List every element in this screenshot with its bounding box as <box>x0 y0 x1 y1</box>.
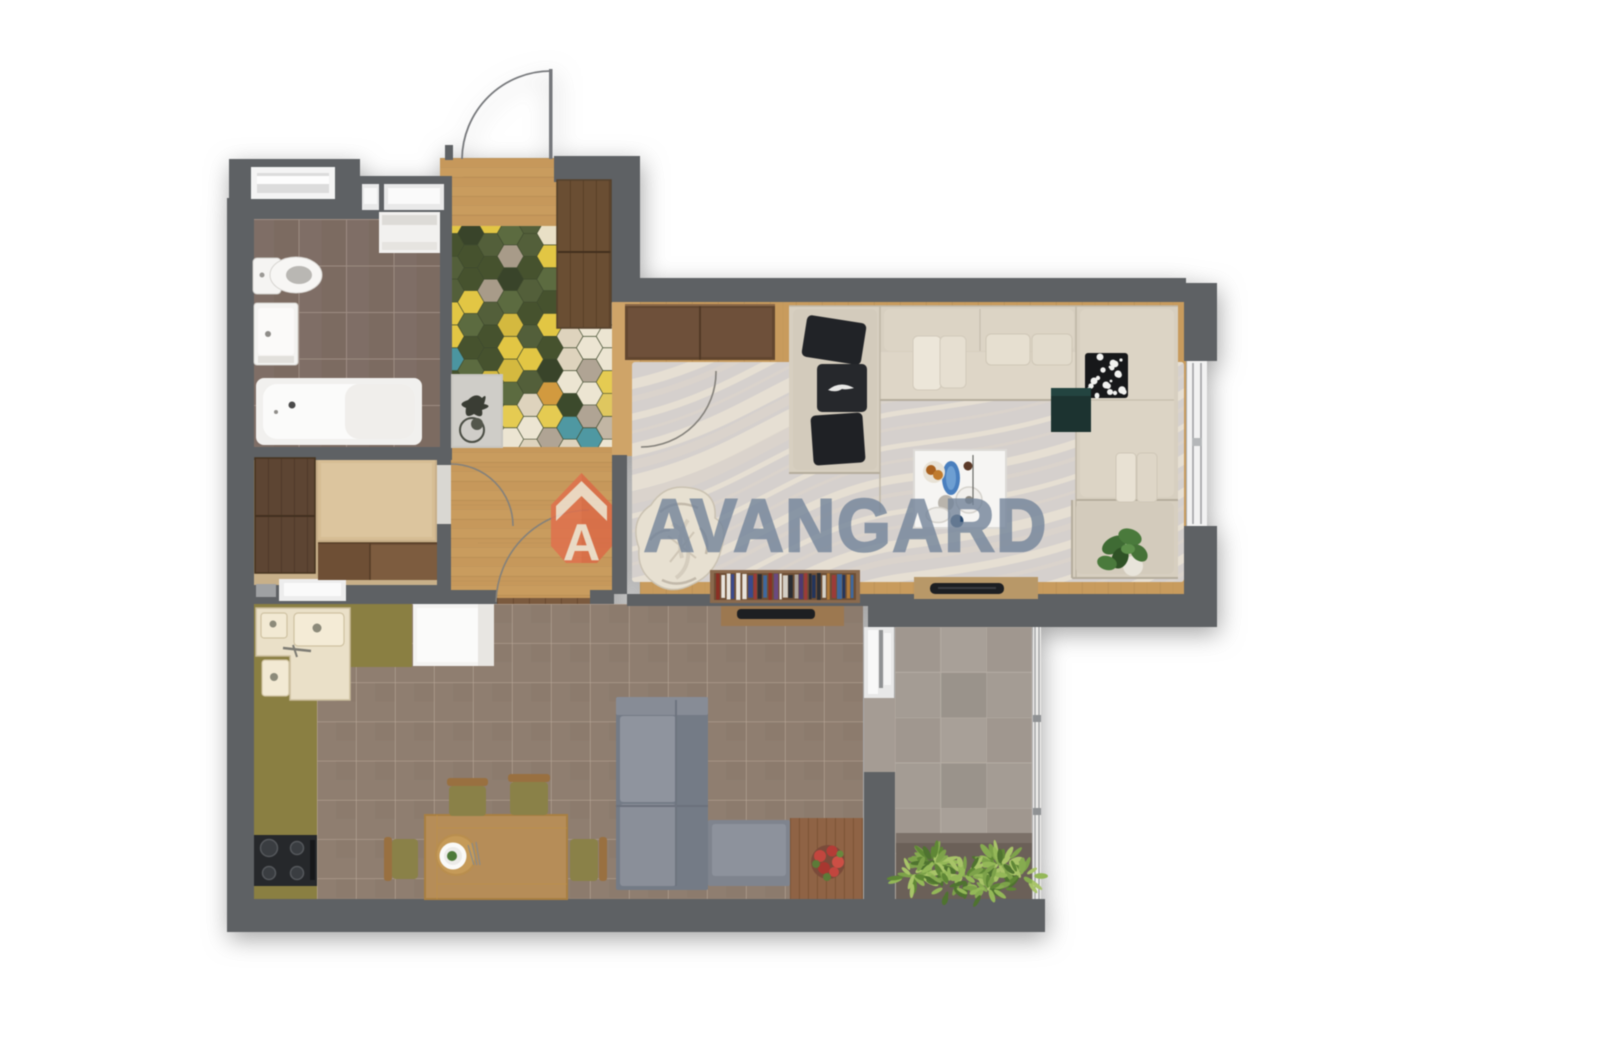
svg-text:A: A <box>563 514 601 572</box>
svg-text:AVANGARD: AVANGARD <box>644 484 1048 567</box>
